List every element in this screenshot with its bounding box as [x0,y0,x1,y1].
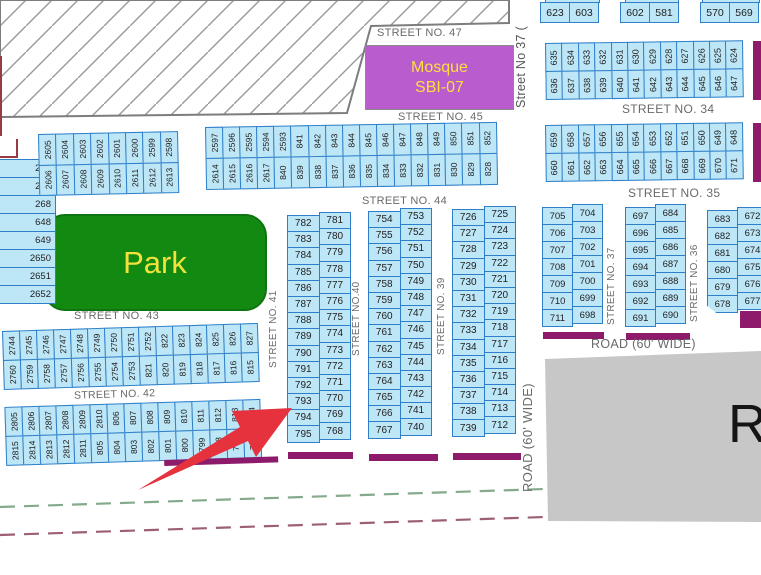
mosque-label-line1: Mosque [411,58,468,78]
plot-cell: 701 [572,255,603,273]
plot-cell: 724 [484,222,517,239]
plot-cell: 695 [625,241,656,259]
plot-pair-block-684-697: 697696695694693692691 684685686687688689… [625,207,685,326]
plot-cell: 661 [562,153,580,182]
plot-cell: 656 [594,124,612,153]
plot-cell: 719 [484,303,517,320]
plot-cell: 709 [542,275,573,293]
plot-cell: 2758 [37,358,56,389]
boundary-dashed-green [0,489,545,507]
plot-cell: 850 [444,123,463,155]
plot-cell: 626 [693,41,711,70]
plot-cell: 710 [542,292,573,310]
plot-cell: 2813 [39,434,58,465]
plot-cell: 2602 [90,133,109,165]
plot-cell: 708 [542,258,573,276]
plot-cell: 2745 [19,330,38,361]
plot-cell: 703 [572,221,603,239]
plot-cell: 838 [308,156,327,188]
plot-cell: 843 [325,125,344,157]
street-35-label: STREET NO. 35 [628,186,720,200]
plot-cell: 685 [655,221,686,239]
plot-cell: 829 [462,153,481,185]
street-44-label: STREET NO. 44 [362,195,447,207]
plot-cell: 664 [611,152,629,181]
plot-cell: 796 [243,428,262,459]
plot-cell: 2652 [0,285,56,304]
plot-cell: 761 [368,324,401,341]
plot-cell: 652 [660,123,678,152]
red-boundary-corner [16,139,18,157]
plot-cell: 2608 [73,163,92,195]
plot-cell: 835 [359,155,378,187]
plot-pair-602-581: 602 581 [620,2,678,23]
plot-cell: 768 [319,422,352,439]
plot-cell: 2610 [108,163,127,195]
edge-strip [753,123,761,182]
plot-cell: 839 [291,156,310,188]
plot-cell: 814 [242,399,261,430]
plot-cell: 813 [225,399,244,430]
plot-cell: 692 [625,292,656,310]
plot-cell: 677 [737,292,761,310]
plot-cell: 776 [319,293,352,310]
plot-cell: 746 [400,321,433,338]
street-47-label: STREET NO. 47 [377,27,462,39]
plot-cell: 673 [737,224,761,242]
plot-cell: 2612 [143,162,162,194]
plot-cell: 716 [484,352,517,369]
plot-cell: 800 [175,430,194,461]
plot-cell: 665 [627,152,645,181]
plot-cell: 805 [90,433,109,464]
plot-cell: 688 [655,272,686,290]
plot-cell: 756 [368,243,401,260]
plot-cell: 803 [124,432,143,463]
plot-cell: 816 [224,352,243,383]
plot-block-street44-row: 2597259625952594259384184284384484584684… [205,122,497,189]
plot-cell: 825 [206,324,225,355]
road-block-label: Ro [728,393,761,455]
plot-cell: 2604 [55,133,74,165]
plot-cell: 826 [223,323,242,354]
plot-cell: 603 [569,2,599,23]
plot-cell: 831 [428,154,447,186]
plot-cell: 715 [484,368,517,385]
plot-cell: 623 [540,2,570,23]
plot-cell: 633 [578,42,596,71]
plot-cell: 834 [376,155,395,187]
plot-cell: 784 [287,247,320,264]
plot-cell: 2755 [88,357,107,388]
plot-cell: 833 [394,154,413,186]
plot-cell: 791 [287,361,320,378]
plot-cell: 799 [192,430,211,461]
road-area-block: Ro [545,351,761,522]
plot-cell: 662 [578,152,596,181]
plot-cell: 682 [707,227,738,245]
plot-cell: 828 [479,153,498,185]
plot-cell: 2615 [223,157,242,189]
plot-cell: 699 [572,289,603,307]
plot-cell: 743 [400,370,433,387]
road-60-wide-vertical-label: ROAD (60' WIDE) [520,383,535,492]
plot-cell: 668 [677,151,695,180]
plot-cell: 680 [707,261,738,279]
plot-cell: 2751 [121,327,140,358]
plot-cell: 844 [342,124,361,156]
plot-cell: 2753 [122,356,141,387]
street-43-label: STREET NO. 43 [74,310,159,322]
plot-cell: 795 [287,425,320,442]
plot-cell: 778 [319,261,352,278]
plot-cell: 840 [274,156,293,188]
plot-cell: 846 [376,124,395,156]
plot-cell: 806 [106,403,125,434]
plot-cell: 763 [368,357,401,374]
plot-cell: 694 [625,258,656,276]
plot-cell: 2598 [160,131,179,163]
plot-cell: 723 [484,238,517,255]
plot-cell: 650 [693,123,711,152]
plot-cell: 779 [319,244,352,261]
plot-cell: 736 [452,371,485,388]
plot-cell: 655 [611,124,629,153]
plot-cell: 2814 [22,435,41,466]
plot-cell: 785 [287,264,320,281]
plot-cell: 766 [368,405,401,422]
plot-cell: 771 [319,374,352,391]
plot-cell: 681 [707,244,738,262]
plot-cell: 773 [319,342,352,359]
plot-cell: 643 [660,69,678,98]
plot-cell: 690 [655,306,686,324]
plot-cell: 2607 [56,164,75,196]
edge-strip [740,311,761,328]
plot-cell: 649 [709,122,727,151]
plot-cell: 653 [643,123,661,152]
plot-cell: 2752 [138,326,157,357]
plot-cell: 675 [737,258,761,276]
plot-cell: 654 [627,124,645,153]
plot-cell: 624 [725,40,743,69]
plot-cell: 711 [542,309,573,327]
plot-cell: 753 [400,208,433,225]
plot-cell: 822 [155,326,174,357]
plot-cell: 676 [737,275,761,293]
plot-cell: 2594 [256,126,275,158]
plot-cell: 841 [290,125,309,157]
plot-cell: 851 [461,122,480,154]
plot-cell: 751 [400,240,433,257]
plot-cell: 801 [158,431,177,462]
plot-cell: 687 [655,255,686,273]
park-label: Park [123,245,187,281]
street-37-label: STREET NO. 37 [606,247,617,325]
plot-cell: 810 [174,401,193,432]
plot-cell: 2809 [72,404,91,435]
plot-cell: 739 [452,419,485,436]
street-45-label: STREET NO. 45 [398,111,483,123]
plot-pair-570-569: 570 569 [700,2,758,23]
plot-cell: 780 [319,228,352,245]
plot-cell: 637 [562,71,580,100]
park-area: Park [43,214,267,311]
plot-cell: 672 [737,207,761,225]
plot-cell: 737 [452,387,485,404]
plot-cell: 678 [707,295,738,313]
plot-cell: 729 [452,258,485,275]
plot-cell: 642 [644,69,662,98]
plot-cell: 847 [393,123,412,155]
plot-cell: 628 [660,41,678,70]
plot-cell: 693 [625,275,656,293]
plot-cell: 772 [319,358,352,375]
plot-cell: 2747 [53,329,72,360]
plot-cell: 769 [319,406,352,423]
plot-cell: 714 [484,384,517,401]
plot-cell: 657 [578,124,596,153]
plot-cell: 2759 [20,359,39,390]
plot-cell: 2750 [104,327,123,358]
plot-cell: 636 [545,71,563,100]
plot-cell: 718 [484,319,517,336]
edge-strip [753,41,761,100]
plot-pair-block-698-711: 705706707708709710711 704703702701700699… [542,207,602,326]
plot-cell: 790 [287,345,320,362]
plot-cell: 747 [400,305,433,322]
plot-cell: 644 [677,69,695,98]
plot-cell: 777 [319,277,352,294]
plot-cell: 818 [190,354,209,385]
plot-cell: 641 [627,70,645,99]
plot-cell: 762 [368,341,401,358]
plot-cell: 670 [709,150,727,179]
plot-cell: 787 [287,296,320,313]
plot-cell: 728 [452,241,485,258]
plot-cell: 666 [644,151,662,180]
plot-cell: 745 [400,338,433,355]
plot-cell: 733 [452,322,485,339]
street-42-label: STREET NO. 42 [74,387,156,402]
plot-cell: 782 [287,215,320,232]
plot-cell: 646 [709,68,727,97]
plot-cell: 647 [726,68,744,97]
red-boundary-corner [0,156,18,158]
plot-cell: 721 [484,271,517,288]
plot-cell: 625 [709,40,727,69]
plot-cell: 2808 [55,405,74,436]
plot-cell: 2810 [89,404,108,435]
plot-cell: 713 [484,400,517,417]
plot-cell: 852 [478,122,497,154]
plot-cell: 757 [368,260,401,277]
plot-cell: 740 [400,418,433,435]
plot-cell: 735 [452,355,485,372]
boundary-dashed-maroon [0,517,545,535]
plot-cell: 722 [484,255,517,272]
plot-cell: 821 [139,355,158,386]
street-36-label: STREET NO. 36 [689,244,700,322]
plot-cell: 783 [287,231,320,248]
plot-cell: 788 [287,312,320,329]
plot-cell: 2611 [126,162,145,194]
plot-cell: 2603 [73,133,92,165]
plot-cell: 629 [643,41,661,70]
plot-cell: 658 [561,125,579,154]
plot-cell: 836 [342,155,361,187]
plot-cell: 645 [693,69,711,98]
plot-cell: 793 [287,393,320,410]
plot-cell: 2746 [36,329,55,360]
plot-cell: 634 [561,43,579,72]
plot-cell: 697 [625,207,656,225]
plot-cell: 691 [625,309,656,327]
plot-cell: 698 [572,306,603,324]
plot-cell: 732 [452,306,485,323]
plot-cell: 849 [427,123,446,155]
plot-cell: 748 [400,289,433,306]
plot-cell: 797 [226,428,245,459]
plot-cell: 2614 [206,158,225,190]
plot-cell: 696 [625,224,656,242]
plot-cell: 2806 [21,406,40,437]
plot-cell: 809 [157,402,176,433]
plot-cell: 742 [400,386,433,403]
plot-cell: 754 [368,211,401,228]
plot-cell: 815 [241,352,260,383]
plot-cell: 750 [400,257,433,274]
plot-cell: 848 [410,123,429,155]
plot-cell: 807 [123,403,142,434]
plot-cell: 765 [368,389,401,406]
plot-cell: 2597 [205,127,224,159]
plot-cell: 638 [578,70,596,99]
plot-cell: 2760 [3,359,22,390]
plot-cell: 2601 [108,132,127,164]
plot-cell: 734 [452,339,485,356]
plot-cell: 2617 [257,157,276,189]
plot-cell: 774 [319,325,352,342]
plot-cell: 602 [620,2,650,23]
plot-cell: 755 [368,227,401,244]
plot-cell: 705 [542,207,573,225]
plot-cell: 649 [0,231,56,250]
plot-cell: 2613 [160,162,179,194]
plot-cell: 704 [572,204,603,222]
plot-cell: 820 [156,355,175,386]
plot-cell: 2593 [273,125,292,157]
plot-cell: 627 [676,41,694,70]
plot-cell: 786 [287,280,320,297]
plot-cell: 683 [707,210,738,228]
plot-cell: 632 [594,42,612,71]
mosque-label-line2: SBI-07 [415,78,464,98]
plot-cell: 744 [400,354,433,371]
plot-cell: 817 [207,353,226,384]
street-37-top-label: Street No 37 ( [514,26,528,108]
plot-cell: 671 [726,150,744,179]
plot-cell: 781 [319,212,352,229]
plot-cell: 2744 [2,330,21,361]
plot-cell: 767 [368,421,401,438]
plot-cell: 702 [572,238,603,256]
plot-cell: 764 [368,373,401,390]
housing-scheme-map: Ro Park Mosque SBI-07 STREET NO. 47 STRE… [0,0,761,575]
edge-strip [369,454,438,461]
plot-cell: 827 [240,323,259,354]
plot-cell: 663 [595,152,613,181]
plot-cell: 581 [649,2,679,23]
plot-cell: 631 [611,42,629,71]
plot-cell: 811 [191,401,210,432]
plot-pair-block-740-767: 7547557567577587597607617627637647657667… [368,211,431,438]
plot-cell: 2756 [71,357,90,388]
plot-cell: 706 [542,224,573,242]
plot-cell: 686 [655,238,686,256]
plot-cell: 830 [445,154,464,186]
plot-cell: 823 [172,325,191,356]
plot-cell: 639 [595,70,613,99]
plot-cell: 2650 [0,249,56,268]
plot-cell: 845 [359,124,378,156]
street-41-label: STREET NO. 41 [268,290,279,368]
plot-cell: 717 [484,336,517,353]
plot-cell: 802 [141,431,160,462]
plot-cell: 842 [308,125,327,157]
plot-cell: 700 [572,272,603,290]
plot-cell: 760 [368,308,401,325]
plot-cell: 669 [693,151,711,180]
plot-cell: 792 [287,377,320,394]
plot-pair-block-672-683: 683682681680679678 672673674675676677 [707,210,761,312]
plot-cell: 2748 [70,328,89,359]
plot-cell: 819 [173,354,192,385]
plot-cell: 749 [400,273,433,290]
plot-cell: 804 [107,432,126,463]
plot-pair-623-603: 623 603 [540,2,598,23]
plot-cell: 794 [287,409,320,426]
plot-cell: 2606 [39,164,58,196]
plot-cell: 731 [452,290,485,307]
plot-cell: 2805 [4,406,23,437]
street-39-label: STREET NO. 39 [436,277,447,355]
plot-cell: 2600 [125,132,144,164]
plot-cell: 2754 [105,356,124,387]
plot-cell: 660 [545,153,563,182]
plot-cell: 712 [484,416,517,433]
plot-cell: 689 [655,289,686,307]
plot-cell: 2811 [73,433,92,464]
plot-cell: 824 [189,325,208,356]
plot-cell: 659 [545,125,563,154]
plot-cell: 635 [545,43,563,72]
plot-cell: 730 [452,274,485,291]
plot-block-648-671: 659658657656655654653652651650649648 660… [545,122,742,181]
plot-cell: 832 [411,154,430,186]
plot-cell: 741 [400,402,433,419]
edge-strip [453,453,521,460]
plot-cell: 837 [325,156,344,188]
plot-cell: 808 [140,402,159,433]
plot-cell: 2599 [142,131,161,163]
street-34-label: STREET NO. 34 [622,102,714,116]
edge-strip [288,452,353,459]
plot-cell: 798 [209,429,228,460]
plot-cell: 2609 [91,163,110,195]
plot-cell: 789 [287,328,320,345]
plot-cell: 2807 [38,405,57,436]
